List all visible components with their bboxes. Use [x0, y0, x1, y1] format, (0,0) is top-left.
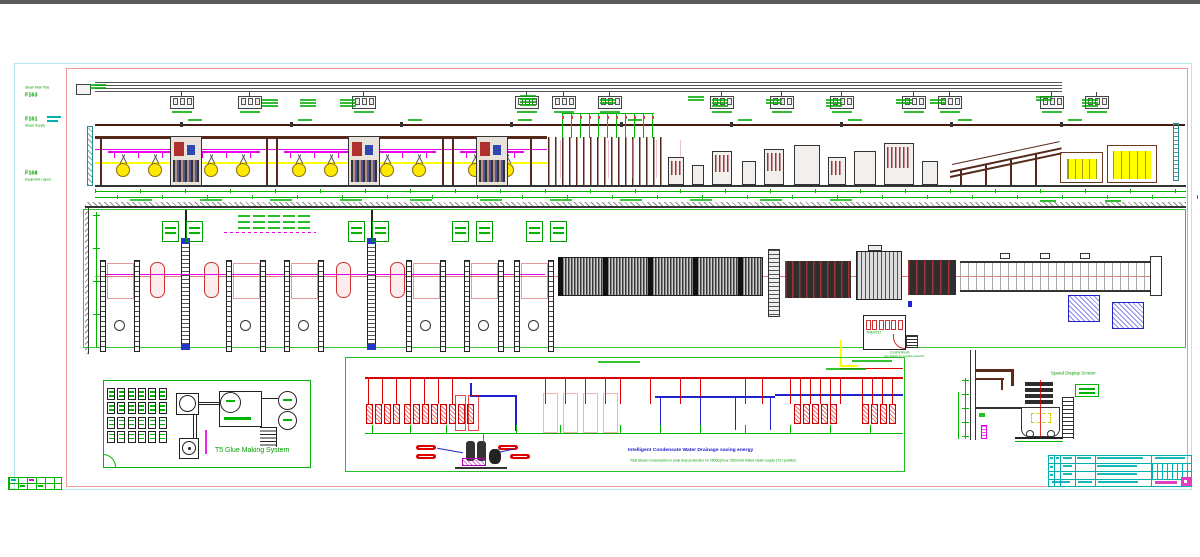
condensate-riser: [790, 425, 791, 433]
stacker-1-paper: [1067, 159, 1097, 179]
glue-bag: [159, 388, 167, 400]
dim-tick: [1017, 195, 1018, 199]
glue-bag-label: [150, 420, 155, 422]
cabinet-label: [189, 232, 200, 234]
splicer-detail-dense: [173, 160, 199, 182]
dim-tick: [297, 195, 298, 199]
dim-tick: [1175, 189, 1176, 193]
glue-bag-label: [109, 434, 114, 436]
sd-pipe: [976, 369, 1014, 372]
steam-drop: [790, 378, 791, 404]
cabinet-label: [165, 232, 176, 234]
hanger-label: [712, 111, 732, 113]
end-ladder: [1173, 123, 1179, 181]
glue-bag-label: [119, 405, 124, 407]
dim-label: [830, 199, 852, 201]
heat-exchanger: [393, 404, 400, 424]
glue-bag-label: [119, 395, 124, 397]
heat-exchanger: [422, 404, 429, 424]
room-cabinet: [872, 320, 877, 330]
hanger-cell: [1102, 98, 1107, 105]
glue-tank-mixer: [220, 392, 241, 413]
hanger-cell: [555, 98, 560, 105]
stand-magenta-drop: [426, 153, 427, 158]
dim-tick: [185, 189, 186, 193]
glue-bag-label: [139, 424, 144, 426]
cabinet-label: [189, 227, 200, 229]
condensate-riser: [745, 425, 746, 433]
glue-bag: [107, 431, 115, 443]
paper-roll: [204, 163, 218, 177]
plan-rail: [226, 260, 232, 352]
glue-bag-label: [160, 438, 165, 440]
plan-dim-tick: [93, 314, 100, 315]
cabinet-label: [479, 227, 490, 229]
steam-main-line: [365, 377, 903, 379]
plan-rail: [514, 260, 520, 352]
hanger-label: [832, 111, 852, 113]
dim-line: [95, 191, 1186, 192]
dim-tick: [455, 189, 456, 193]
dim-tick: [545, 189, 546, 193]
heat-exchanger: [467, 404, 474, 424]
pipe-fitting: [1060, 122, 1063, 127]
mini-table-row-line: [8, 483, 62, 484]
plan-circle: [240, 320, 251, 331]
plan-roll-ghost: [291, 263, 318, 299]
machine-block: [922, 161, 938, 185]
ramp-post: [960, 169, 962, 185]
annotation-bar: [600, 99, 616, 101]
dim-tick: [725, 189, 726, 193]
dim-label: [340, 199, 362, 201]
glue-bag-label: [150, 405, 155, 407]
steam-drop: [396, 378, 397, 404]
conveyor-endcap: [1150, 256, 1162, 296]
dim-tick: [860, 189, 861, 193]
plan-circle: [528, 320, 539, 331]
annotation-bar: [600, 102, 616, 104]
glue-bag-label: [139, 395, 144, 397]
plan-block: [908, 260, 956, 295]
condensate-riser: [516, 425, 517, 433]
plan-rail: [260, 260, 266, 352]
dim-tick: [1062, 195, 1063, 199]
condensate-riser: [560, 425, 561, 433]
glue-bag: [107, 388, 115, 400]
dim-tick: [657, 195, 658, 199]
elevation-label-desc: Equipment Layout: [25, 178, 51, 182]
red-label-text: [419, 456, 433, 457]
title-block-text-bar: [1063, 465, 1072, 467]
title-block-text-bar: [1097, 473, 1137, 475]
condensate-riser: [830, 425, 831, 433]
control-room-stairs: [906, 335, 918, 348]
red-label-text: [419, 447, 433, 448]
dim-tick: [1152, 195, 1153, 199]
pipe-label: [188, 119, 202, 121]
glue-bag-label: [160, 395, 165, 397]
dim-tick: [905, 189, 906, 193]
machine-ghost: [543, 393, 558, 433]
steam-drop: [680, 378, 681, 404]
mini-table-bar: [29, 479, 34, 481]
annotation-bar: [826, 105, 842, 107]
plan-rail: [284, 260, 290, 352]
dim-label: [760, 199, 782, 201]
pipe-fitting: [180, 122, 183, 127]
sd-centerline: [1040, 380, 1041, 438]
sd-green-box: [979, 413, 985, 417]
capacity-cell: [268, 227, 280, 229]
annotation-bar: [766, 102, 782, 104]
dim-label: [270, 199, 292, 201]
heat-exchanger: [404, 404, 411, 424]
plan-column: [181, 238, 190, 350]
overhead-rail: [95, 82, 1062, 93]
control-room-caption-1: Control Room: [890, 351, 909, 354]
sd-floor-link: [976, 407, 1021, 409]
stand-magenta-drop: [114, 153, 115, 158]
hanger-cell: [847, 98, 852, 105]
title-block-text-bar: [1050, 474, 1053, 476]
steam-drop: [892, 378, 893, 404]
sd-yellow-guide: [1031, 413, 1051, 423]
floor-line: [95, 185, 1186, 187]
steam-drop: [452, 378, 453, 404]
paper-roll: [148, 163, 162, 177]
hanger-cell: [948, 98, 953, 105]
plan-roll: [336, 262, 351, 298]
glue-bag: [138, 431, 146, 443]
plan-rail: [464, 260, 470, 352]
plan-column: [367, 238, 376, 350]
steam-note-bar: [826, 368, 866, 370]
dim-tick: [770, 189, 771, 193]
steam-drop: [424, 378, 425, 404]
glue-bag: [159, 431, 167, 443]
heat-exchanger: [803, 404, 810, 424]
plan-column-cap: [367, 344, 376, 350]
room-cabinet: [885, 320, 890, 330]
glue-bag-label: [129, 438, 134, 440]
title-block-logo-dot: [1184, 480, 1187, 483]
hanger-label: [240, 111, 260, 113]
capacity-cell: [268, 221, 280, 223]
dim-tick: [162, 195, 163, 199]
hanger-label: [772, 111, 792, 113]
glue-bag: [148, 388, 156, 400]
annotation-bar: [90, 87, 106, 89]
glue-bag-label: [109, 424, 114, 426]
dim-tick: [500, 189, 501, 193]
cabinet-label: [455, 232, 466, 234]
steam-drop: [650, 378, 651, 404]
annotation-bar: [1105, 200, 1121, 202]
plan-roll-ghost: [413, 263, 440, 299]
glue-pipe-v: [193, 415, 197, 438]
conveyor-box: [1080, 253, 1090, 259]
condensate-riser: [620, 425, 621, 433]
stand-magenta-drop: [226, 153, 227, 158]
capacity-cell: [298, 215, 310, 217]
sd-machine-slab: [1025, 400, 1053, 404]
hanger-label: [354, 111, 374, 113]
annotation-bar: [688, 96, 704, 98]
dim-tick: [140, 189, 141, 193]
hanger-label: [554, 111, 574, 113]
room-cabinet: [898, 320, 903, 330]
stand-magenta-drop: [162, 153, 163, 158]
stand-post: [100, 137, 102, 185]
annotation-bar: [1036, 99, 1052, 101]
condensate-riser: [446, 425, 447, 433]
steam-drop: [872, 378, 873, 404]
rail-box: [76, 84, 91, 95]
glue-bag-label: [139, 438, 144, 440]
splicer-detail-red: [480, 142, 490, 156]
dim-tick: [1040, 189, 1041, 193]
dryer-plan-bands: [558, 257, 763, 296]
glue-bag-label: [160, 424, 165, 426]
annotation-bar: [300, 102, 316, 104]
glue-stairs: [260, 427, 277, 447]
annotation-bar: [300, 99, 316, 101]
annotation-bar: [1082, 99, 1098, 101]
stand-magenta-drop: [138, 153, 139, 158]
plan-dim-tick: [93, 281, 100, 282]
ramp-post: [1035, 153, 1037, 185]
hanger-cell: [362, 98, 367, 105]
glue-bag: [128, 431, 136, 443]
dim-tick: [1130, 189, 1131, 193]
plan-rail: [406, 260, 412, 352]
dim-tick: [117, 195, 118, 199]
pipe-label: [848, 119, 862, 121]
pipe-label: [1068, 119, 1082, 121]
pipe-fitting: [950, 122, 953, 127]
plan-rail: [318, 260, 324, 352]
glue-bag-label: [160, 434, 165, 436]
dim-tick: [1197, 195, 1198, 199]
plan-rail: [134, 260, 140, 352]
annotation-bar: [712, 105, 728, 107]
blue-mark: [908, 301, 912, 307]
hanger-cell: [180, 98, 185, 105]
glue-bag: [148, 431, 156, 443]
steam-note-bar: [852, 360, 892, 362]
sd-screen-text-bar: [1079, 388, 1095, 390]
plan-circle: [114, 320, 125, 331]
sd-machine-slab: [1025, 382, 1053, 386]
hanger-cell: [173, 98, 178, 105]
hanger-label: [172, 111, 192, 113]
plan-magenta-dashed: [224, 232, 316, 233]
trap-green-drop: [483, 433, 484, 441]
sd-machine-slab: [1025, 394, 1053, 398]
title-block-text-bar: [1078, 481, 1092, 483]
glue-bag-label: [129, 391, 134, 393]
machine-detail: [671, 161, 681, 175]
plan-circle: [298, 320, 309, 331]
annotation-bar: [1082, 105, 1098, 107]
glue-bag: [128, 388, 136, 400]
title-block-text-bar: [1052, 481, 1070, 483]
annotation-bar: [712, 102, 728, 104]
annotation-bar: [340, 102, 356, 104]
hanger-cell: [241, 98, 246, 105]
splicer-detail-dense: [351, 160, 377, 182]
stand-post: [530, 137, 532, 185]
plan-roll-ghost: [471, 263, 498, 299]
sd-base: [1015, 437, 1063, 439]
capacity-cell: [238, 221, 250, 223]
pipe-fitting: [400, 122, 403, 127]
annotation-bar: [1040, 200, 1056, 202]
plan-block: [785, 261, 851, 298]
machine-block: [794, 145, 820, 185]
glue-bag-label: [119, 409, 124, 411]
steam-drop: [810, 378, 811, 404]
machine-detail: [831, 161, 843, 175]
cabinet-label: [553, 227, 564, 229]
hot-water-note: [47, 120, 58, 122]
heat-exchanger: [812, 404, 819, 424]
annotation-bar: [90, 84, 106, 86]
blue-drop: [735, 397, 736, 430]
glue-bag: [117, 388, 125, 400]
hanger-cell: [787, 98, 792, 105]
plan-dim-tick: [93, 215, 100, 216]
dim-tick: [590, 189, 591, 193]
hanger-cell: [369, 98, 374, 105]
steam-drop: [745, 378, 746, 404]
dim-tick: [387, 195, 388, 199]
glue-bag-label: [119, 438, 124, 440]
hanger-cell: [562, 98, 567, 105]
glue-bag-label: [119, 434, 124, 436]
pipe-label: [298, 119, 312, 121]
annotation-bar: [826, 102, 842, 104]
glue-bag-label: [129, 395, 134, 397]
dim-tick: [995, 189, 996, 193]
cad-sheet: Steam Main Pipe F163 F161 Steam Supply F…: [0, 0, 1200, 557]
machine-detail: [767, 153, 781, 171]
condensate-riser: [372, 425, 373, 433]
stand-post: [442, 137, 444, 185]
glue-bag-label: [139, 391, 144, 393]
sd-dim-line: [958, 392, 959, 439]
heat-exchanger: [794, 404, 801, 424]
condensate-collector-line: [365, 433, 903, 434]
glue-bag-label: [129, 424, 134, 426]
condensate-riser: [660, 425, 661, 433]
stand-magenta-drop: [466, 153, 467, 158]
dim-tick: [522, 195, 523, 199]
heat-exchanger: [366, 404, 373, 424]
dim-tick: [432, 195, 433, 199]
plan-dim-tick: [93, 248, 100, 249]
dim-tick: [95, 189, 96, 193]
dim-tick: [230, 189, 231, 193]
capacity-cell: [268, 215, 280, 217]
splicer-detail-red: [174, 142, 184, 156]
mini-table-bar: [20, 485, 25, 487]
machine-detail: [887, 147, 911, 168]
glue-bag-label: [150, 424, 155, 426]
glue-bag: [159, 402, 167, 414]
hanger-label: [1087, 111, 1107, 113]
dim-label: [410, 199, 432, 201]
condensate-riser: [410, 425, 411, 433]
hanger-cell: [912, 98, 917, 105]
glue-bag-label: [139, 434, 144, 436]
conveyor-rail: [960, 290, 1150, 292]
plan-circle: [420, 320, 431, 331]
glue-bag: [148, 417, 156, 429]
plan-block: [856, 251, 902, 300]
title-block-text-bar: [1063, 473, 1072, 475]
title-block-text-bar: [1063, 457, 1072, 459]
room-cabinet: [891, 320, 896, 330]
dim-label: [130, 199, 152, 201]
stacker-2-paper: [1113, 151, 1151, 179]
capacity-cell: [253, 227, 265, 229]
glue-bag-label: [129, 405, 134, 407]
sd-dim-tick: [962, 394, 969, 395]
plan-magenta-link: [150, 274, 219, 275]
heat-exchanger: [449, 404, 456, 424]
hanger-label: [600, 111, 620, 113]
machine-ghost: [563, 393, 578, 433]
paper-roll: [412, 163, 426, 177]
plan-roll-ghost: [107, 263, 134, 299]
dim-line: [95, 197, 1186, 198]
sd-dim-tick: [962, 408, 969, 409]
glue-bag-label: [139, 420, 144, 422]
glue-bag-label: [109, 409, 114, 411]
red-label-text: [513, 456, 527, 457]
glue-link-line: [262, 398, 278, 399]
dim-tick: [275, 189, 276, 193]
annotation-bar: [930, 102, 946, 104]
splicer-detail-blue: [187, 145, 195, 155]
dim-tick: [972, 195, 973, 199]
capacity-cell: [298, 221, 310, 223]
sd-bottom-dim: [1015, 441, 1063, 442]
elevation-label-group-3: F168 Equipment Layout: [25, 170, 90, 187]
stand-magenta-drop: [290, 153, 291, 158]
title-block-hline: [1048, 479, 1192, 480]
room-cabinet: [879, 320, 884, 330]
sd-wall: [970, 350, 976, 440]
glue-system-title: T5 Glue Making System: [215, 446, 289, 454]
annotation-bar: [896, 102, 912, 104]
title-block-text-bar: [1097, 465, 1137, 467]
heat-exchanger: [384, 404, 391, 424]
stand-post: [452, 137, 454, 185]
plan-circle: [478, 320, 489, 331]
glue-bag-label: [139, 405, 144, 407]
mini-table-bar: [38, 485, 43, 487]
glue-bag: [117, 417, 125, 429]
splicer-detail-dense: [479, 160, 505, 182]
title-block-text-bar: [1098, 481, 1138, 483]
machine-detail: [715, 155, 729, 172]
dim-tick: [927, 195, 928, 199]
glue-bag-label: [109, 420, 114, 422]
sd-ladder: [1062, 397, 1074, 439]
